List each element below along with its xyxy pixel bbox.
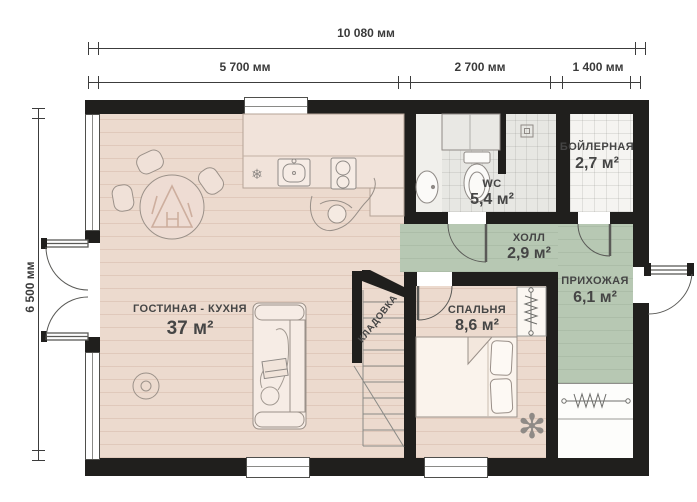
hall-area: 2,9 м² — [507, 245, 551, 263]
kitchen-counter-corner — [370, 188, 404, 216]
wc-door — [448, 224, 486, 262]
dim-line-total — [88, 48, 645, 49]
bedroom-door — [418, 286, 452, 320]
hall-name: ХОЛЛ — [513, 232, 545, 244]
dim-seg-1: 5 700 мм — [219, 60, 270, 74]
boiler-name: БОЙЛЕРНАЯ — [560, 141, 634, 153]
bedroom-wardrobe — [517, 287, 546, 336]
boiler-area: 2,7 м² — [575, 155, 619, 173]
wc-name: WC — [482, 178, 501, 190]
wc-fixtures — [416, 114, 533, 203]
laptop-icon — [262, 358, 288, 378]
dim-total-height: 6 500 мм — [23, 261, 37, 312]
dim-total-width: 10 080 мм — [337, 26, 395, 40]
dining-table — [140, 175, 204, 239]
dim-line-height — [38, 108, 39, 460]
shower-drain-icon — [521, 125, 533, 137]
wall-storage-angled — [362, 270, 406, 298]
bedroom-area: 8,6 м² — [455, 317, 499, 335]
boiler-door — [578, 224, 610, 256]
kitchen-sink — [278, 159, 310, 186]
plant-icon: ✻ — [518, 408, 547, 446]
entry-closet — [558, 394, 633, 419]
stove-icon — [331, 158, 356, 189]
wc-counter — [442, 114, 500, 150]
french-doors — [41, 238, 88, 342]
plan-overlay: ❄ — [0, 0, 697, 502]
living-kitchen-area: 37 м² — [167, 318, 214, 340]
entry-hall-name: ПРИХОЖАЯ — [561, 275, 629, 287]
sofa — [253, 303, 306, 429]
dim-seg-2: 2 700 мм — [454, 60, 505, 74]
floor-plan: ❄ — [0, 0, 697, 502]
entry-door — [644, 263, 694, 314]
pouf — [133, 373, 159, 399]
entry-hall-area: 6,1 м² — [573, 289, 617, 307]
wc-area: 5,4 м² — [470, 191, 514, 209]
bed — [416, 337, 517, 417]
bedroom-name: СПАЛЬНЯ — [448, 304, 506, 316]
dim-seg-3: 1 400 мм — [572, 60, 623, 74]
fridge-icon: ❄ — [251, 166, 263, 182]
wc-sink-icon — [416, 171, 438, 203]
dim-line-segments — [88, 82, 640, 83]
kitchen-counter: ❄ — [243, 114, 404, 231]
closet-rail-icon — [562, 394, 630, 407]
living-kitchen-name: ГОСТИНАЯ - КУХНЯ — [133, 303, 247, 315]
